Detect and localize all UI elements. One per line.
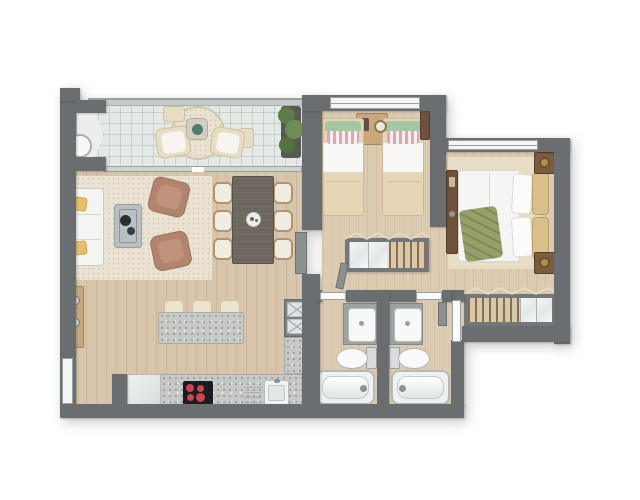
- hall-door-leaf: [295, 232, 307, 274]
- dining-chair: [273, 238, 293, 260]
- bed-sheet: [383, 143, 423, 173]
- accent-pillow: [532, 173, 549, 215]
- kitchen-wall-stub: [112, 374, 127, 406]
- balcony-ottoman: [163, 106, 185, 122]
- wardrobe-closet: [464, 294, 556, 326]
- dining-chair: [213, 238, 233, 260]
- vanity: [389, 303, 423, 345]
- closet-door-panel: [368, 242, 387, 268]
- fridge: [127, 374, 161, 406]
- coffee-table-tray: [119, 209, 137, 243]
- floor-plan: [0, 0, 640, 500]
- wall-master-bottom: [462, 326, 570, 342]
- wall-bottom: [60, 404, 464, 418]
- plant-icon: [279, 137, 295, 153]
- vanity: [343, 303, 377, 345]
- dining-table: [232, 176, 274, 264]
- window-mullion: [331, 103, 419, 104]
- wall-right: [554, 138, 570, 344]
- armchair-cushion: [155, 183, 184, 210]
- cooktop: [183, 381, 213, 405]
- wall-bath-top-c: [442, 290, 451, 302]
- blanket-fold: [387, 181, 421, 182]
- wall-bedroom-divider: [430, 95, 446, 227]
- hanging-clothes: [389, 242, 425, 268]
- burner-icon: [196, 393, 205, 402]
- table-decor: [120, 215, 131, 226]
- window-mullion: [449, 145, 537, 146]
- double-bed: [458, 170, 550, 262]
- burner-icon: [187, 394, 194, 401]
- drain-icon: [405, 321, 410, 326]
- drainboard: [244, 383, 262, 403]
- blanket-fold: [327, 181, 361, 182]
- balcony-table: [186, 118, 208, 140]
- bathtub: [316, 370, 375, 405]
- table-centerpiece: [246, 212, 261, 227]
- faucet-icon: [399, 385, 406, 392]
- burner-icon: [186, 384, 194, 392]
- dresser-item: [449, 211, 455, 217]
- kids-window: [330, 97, 420, 109]
- toilet: [398, 348, 430, 369]
- entry-door: [62, 358, 73, 404]
- kitchen-sink: [264, 380, 289, 406]
- lamp-icon: [374, 120, 387, 133]
- lamp-icon: [539, 257, 550, 268]
- table-plant-icon: [192, 124, 203, 135]
- armchair-cushion: [157, 238, 185, 265]
- chair-cushion: [215, 131, 240, 155]
- master-door-leaf: [452, 300, 461, 342]
- floor-plan-canvas: [0, 0, 640, 500]
- vanity-sink: [348, 308, 376, 342]
- drain-icon: [359, 321, 364, 326]
- faucet-icon: [274, 379, 280, 383]
- single-bed: [322, 118, 364, 216]
- burner-icon: [197, 385, 204, 392]
- wall-niche-bottom: [76, 157, 106, 171]
- dresser-item: [449, 177, 455, 187]
- bathroom-inner-door-leaf: [438, 302, 447, 326]
- faucet-icon: [360, 385, 367, 392]
- single-bed: [382, 118, 424, 216]
- closet-door-panel: [349, 242, 368, 268]
- bed-throw: [459, 206, 504, 263]
- sink-basin: [268, 385, 285, 401]
- dining-chair: [273, 182, 293, 204]
- wardrobe-closet: [345, 238, 429, 272]
- toilet: [336, 348, 368, 369]
- bed-pillow: [511, 217, 533, 258]
- dining-chair: [213, 182, 233, 204]
- bathtub: [391, 370, 450, 405]
- wall-kids-left: [302, 95, 322, 230]
- centerpiece-item: [250, 217, 254, 221]
- bathroom-door-leaf: [320, 292, 346, 300]
- lamp-icon: [539, 157, 550, 168]
- chair-cushion: [161, 130, 187, 154]
- centerpiece-item: [255, 219, 258, 222]
- balcony-railing: [88, 98, 302, 106]
- sliding-door-gap: [192, 167, 204, 172]
- closet-door-panel: [536, 298, 552, 322]
- hanging-clothes: [468, 298, 520, 322]
- dining-chair: [213, 210, 233, 232]
- balcony-chair: [209, 125, 247, 159]
- dining-chair: [273, 210, 293, 232]
- striped-pillow: [387, 131, 419, 144]
- closet-rail-zigzag-icon: [345, 231, 429, 240]
- striped-pillow: [327, 131, 359, 144]
- dresser: [446, 170, 458, 254]
- wall-bath-center: [377, 290, 389, 406]
- vanity-sink: [394, 308, 422, 342]
- kids-shelf: [420, 110, 430, 140]
- kitchen-island: [158, 312, 244, 344]
- bed-pillow: [511, 174, 533, 215]
- wall-bath-right: [451, 340, 464, 406]
- bed-sheet: [323, 143, 363, 173]
- closet-rail-zigzag-icon: [464, 286, 556, 295]
- bathroom-door-leaf: [416, 292, 442, 300]
- master-window: [448, 140, 538, 150]
- wall-niche-top: [76, 100, 106, 113]
- closet-door-panel: [520, 298, 536, 322]
- coffee-table: [114, 204, 142, 248]
- table-decor: [127, 227, 135, 235]
